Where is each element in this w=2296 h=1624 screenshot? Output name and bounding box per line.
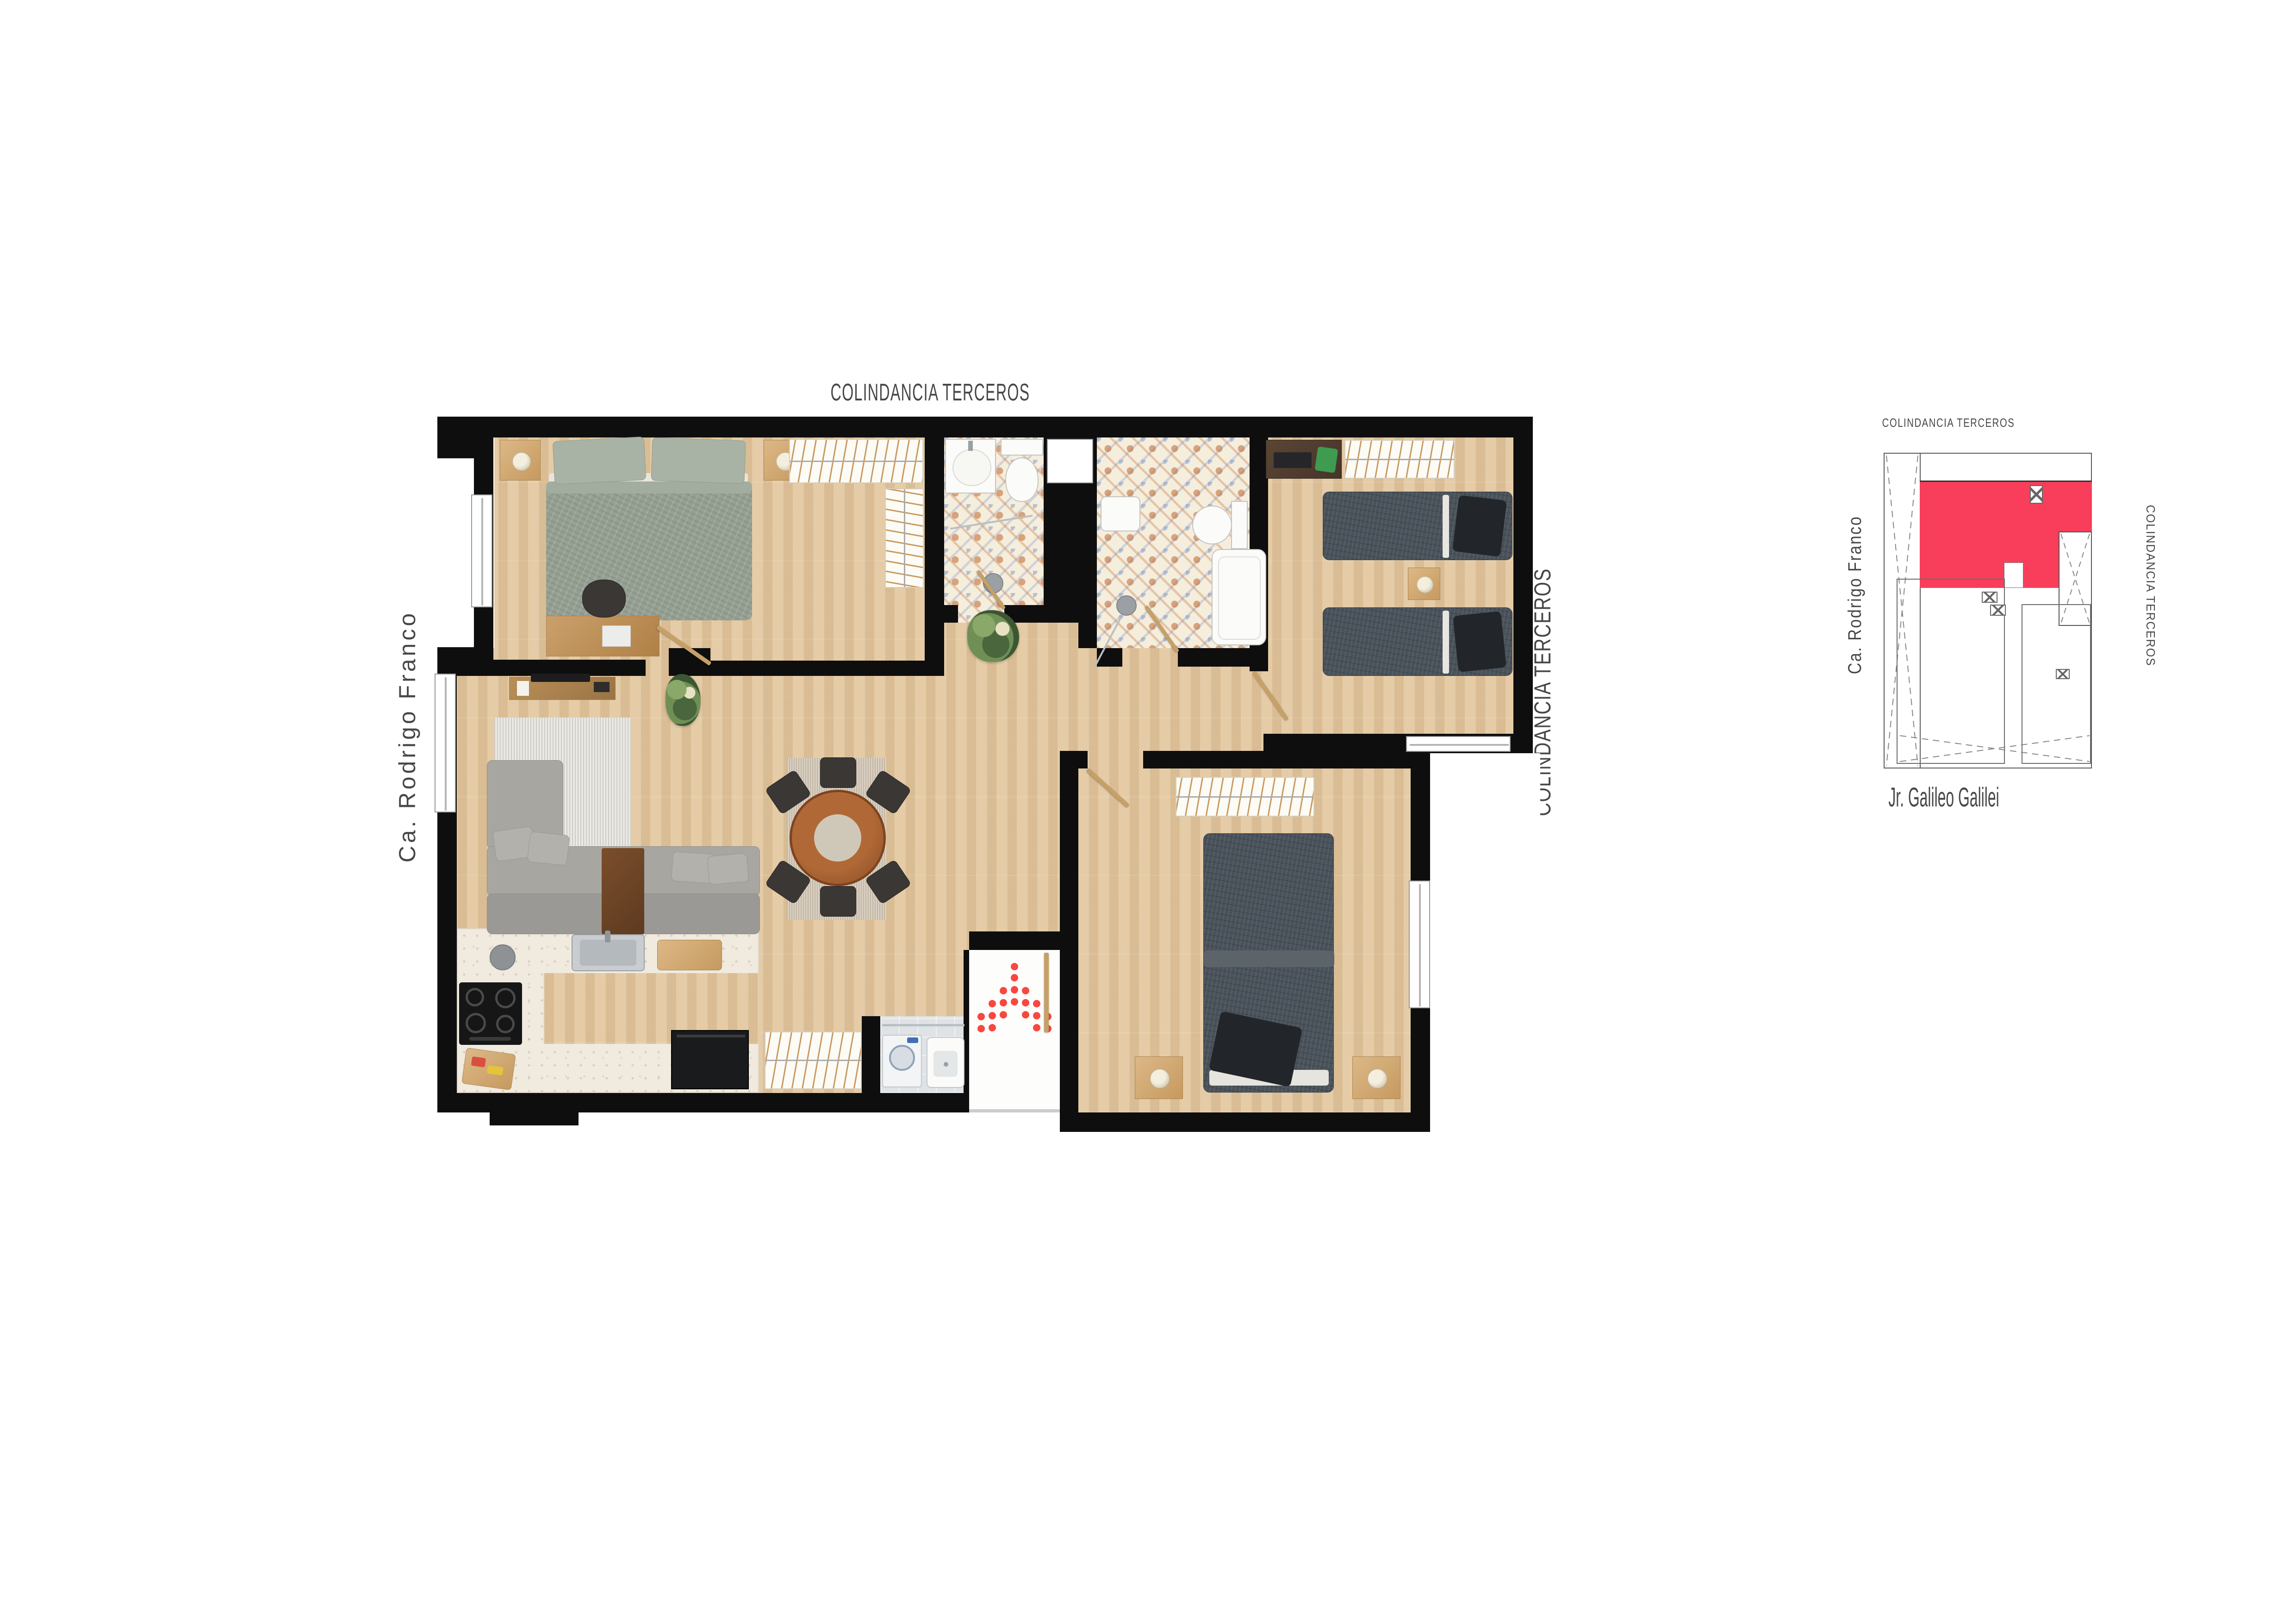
- master-desk: [546, 616, 660, 656]
- tv-console: [509, 677, 616, 700]
- wall-top: [437, 417, 1533, 437]
- wall-laundry-divider: [862, 1016, 880, 1093]
- bathroom2-toilet-bowl: [1192, 506, 1232, 544]
- pillow: [553, 437, 647, 485]
- keymap-vent-icon: [2056, 669, 2070, 679]
- plant: [666, 674, 701, 726]
- bathroom2-basin: [1101, 496, 1140, 531]
- plan-label-left: Ca. Rodrigo Franco: [393, 598, 422, 875]
- twin-closet: [1344, 440, 1455, 479]
- wall-topleft-block: [437, 417, 474, 458]
- nightstand: [1135, 1056, 1183, 1099]
- refrigerator: [671, 1030, 749, 1089]
- wall-entry-top: [969, 931, 1060, 950]
- wall-right-top: [1513, 417, 1533, 753]
- laundry-closet: [765, 1031, 862, 1089]
- wall-master-right: [925, 417, 944, 676]
- keymap-label-top: COLINDANCIA TERCEROS: [1858, 411, 2039, 434]
- keymap-vent-icon: [1990, 605, 2006, 616]
- wall-bottom-right: [1060, 1112, 1430, 1132]
- nightstand: [1352, 1056, 1400, 1099]
- sofa-side-table: [602, 848, 644, 934]
- laundry-glass-rail: [882, 1024, 964, 1026]
- master-bed: [546, 481, 752, 620]
- bathroom2-bathtub: [1212, 549, 1266, 645]
- bedroom3-closet: [1176, 777, 1314, 817]
- pillow: [651, 437, 746, 484]
- entry-threshold: [969, 1109, 1060, 1112]
- keymap-vent-icon: [2030, 485, 2043, 504]
- wall-bottom-step: [490, 1112, 579, 1125]
- dining-table: [790, 790, 886, 886]
- wall-bath2-left-stub: [1078, 623, 1097, 648]
- cutting-board: [657, 940, 722, 970]
- master-closet: [789, 439, 923, 483]
- window-living: [435, 674, 456, 812]
- nightstand: [500, 440, 541, 481]
- keymap-label-bottom: Jr. Galileo Galilei: [1867, 783, 2020, 811]
- keymap-unit-notch: [2004, 562, 2023, 588]
- location-key-map: COLINDANCIA TERCEROS Ca. Rodrigo Franco …: [1712, 394, 2221, 833]
- keymap-bottom-hatch: [1900, 734, 2090, 763]
- bathroom2-toilet-tank: [1231, 501, 1248, 549]
- twin-bed-2: [1323, 607, 1512, 676]
- wall-master-bottom-b: [710, 661, 944, 676]
- cooktop: [459, 982, 522, 1045]
- plan-label-top: COLINDANCIA TERCEROS: [787, 376, 1074, 409]
- washing-machine: [882, 1035, 922, 1087]
- dining-chair: [820, 886, 856, 917]
- bedroom3-bed: [1203, 833, 1334, 1093]
- cutting-board: [461, 1048, 516, 1090]
- bowl: [490, 944, 516, 970]
- exterior-notch-right: [1411, 753, 1540, 1135]
- shower-head: [1116, 595, 1137, 616]
- keymap-label-right: COLINDANCIA TERCEROS: [2139, 476, 2162, 696]
- keymap-unit-top-border: [1920, 481, 2092, 482]
- sofa-pillow: [527, 831, 570, 866]
- window-twin-room: [1406, 736, 1511, 752]
- wall-bath1-bottom-a: [944, 605, 958, 623]
- wall-bedroom3-top-b: [1143, 751, 1411, 768]
- entry-door-leaf: [1044, 953, 1049, 1032]
- wall-bottom-left: [437, 1093, 968, 1112]
- bathroom1-toilet: [1001, 439, 1043, 456]
- window-master: [471, 494, 492, 607]
- wall-bath2-bottom-b: [1178, 648, 1268, 667]
- twin-nightstand: [1408, 568, 1440, 600]
- sofa-pillow: [707, 853, 749, 885]
- entry-arrow-icon: [974, 962, 1055, 1036]
- bathroom1-sink-counter: [945, 439, 996, 493]
- master-closet-side: [885, 488, 924, 588]
- bathroom1-toilet-bowl: [1005, 457, 1039, 502]
- laundry-sink: [927, 1037, 964, 1088]
- wall-entry-left: [964, 950, 969, 1112]
- keymap-vent-icon: [1982, 592, 1997, 603]
- twin-desk: [1266, 440, 1342, 479]
- dining-chair: [820, 757, 856, 788]
- desk-chair: [582, 580, 626, 618]
- duct-shaft: [1047, 439, 1093, 483]
- kitchen-sink: [572, 934, 645, 971]
- keymap-unit-highlight: [1920, 481, 2092, 531]
- floor-plan: COLINDANCIA TERCEROS Ca. Rodrigo Franco …: [0, 0, 1666, 1204]
- wall-bedroom3-left: [1060, 751, 1078, 1132]
- keymap-label-left: Ca. Rodrigo Franco: [1843, 497, 1867, 693]
- wall-bedroom3-top-a: [1060, 751, 1088, 768]
- window-bedroom3: [1409, 881, 1430, 1008]
- plant: [967, 610, 1019, 662]
- twin-bed-1: [1323, 492, 1512, 560]
